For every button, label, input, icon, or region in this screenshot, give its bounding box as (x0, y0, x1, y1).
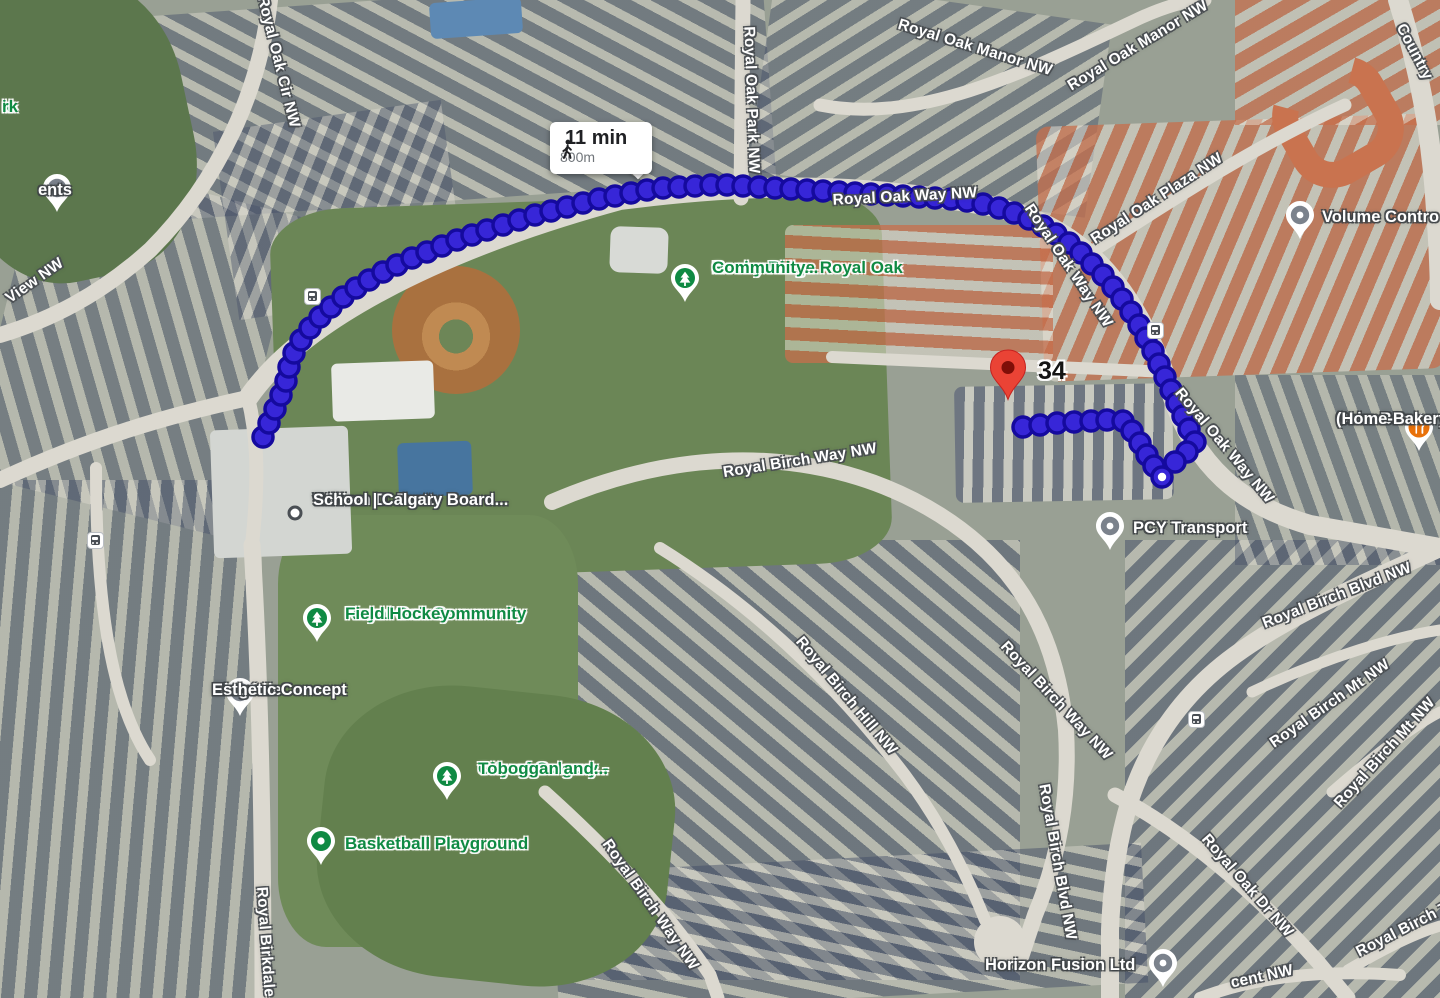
transit-stop-icon[interactable] (1147, 322, 1164, 339)
destination-number: 34 (1038, 357, 1066, 386)
transit-stop-icon[interactable] (304, 288, 321, 305)
transit-stop-icon[interactable] (87, 532, 104, 549)
satellite-map[interactable]: 34 11 min 800m Royal Oak Cir NWRoyal Oak… (0, 0, 1440, 998)
route-endpoint-center (1158, 473, 1166, 481)
transit-stop-icon[interactable] (1188, 711, 1205, 728)
route-info-bubble[interactable]: 11 min 800m (550, 122, 652, 174)
